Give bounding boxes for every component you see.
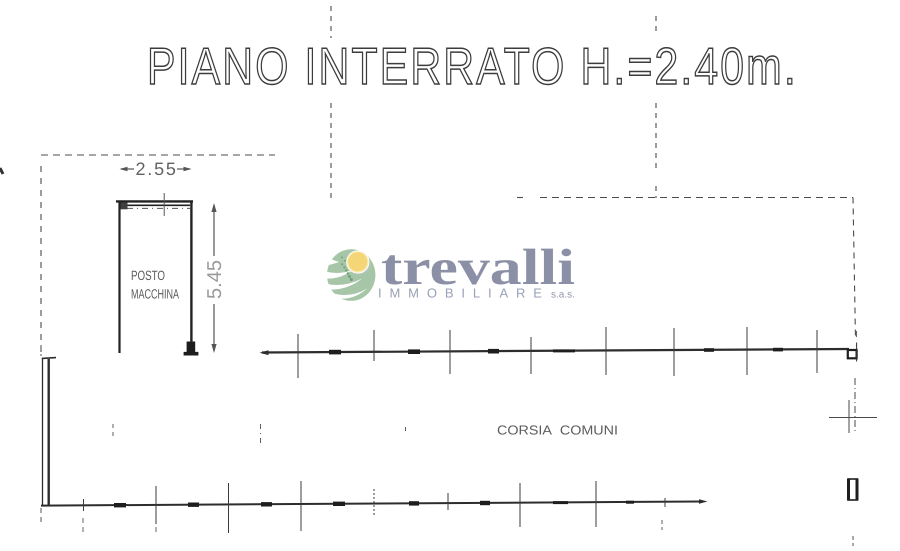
svg-text:CORSIA COMUNI: CORSIA COMUNI: [497, 423, 618, 438]
svg-text:POSTO: POSTO: [131, 268, 165, 283]
svg-text:MACCHINA: MACCHINA: [131, 287, 179, 302]
svg-text:PIANO INTERRATO H.=2.40m.: PIANO INTERRATO H.=2.40m.: [147, 38, 798, 96]
svg-text:5.45: 5.45: [204, 260, 226, 299]
svg-text:s.a.s.: s.a.s.: [551, 290, 575, 301]
svg-text:2.55: 2.55: [136, 159, 178, 179]
svg-text:IMMOBILIARE: IMMOBILIARE: [378, 286, 550, 301]
